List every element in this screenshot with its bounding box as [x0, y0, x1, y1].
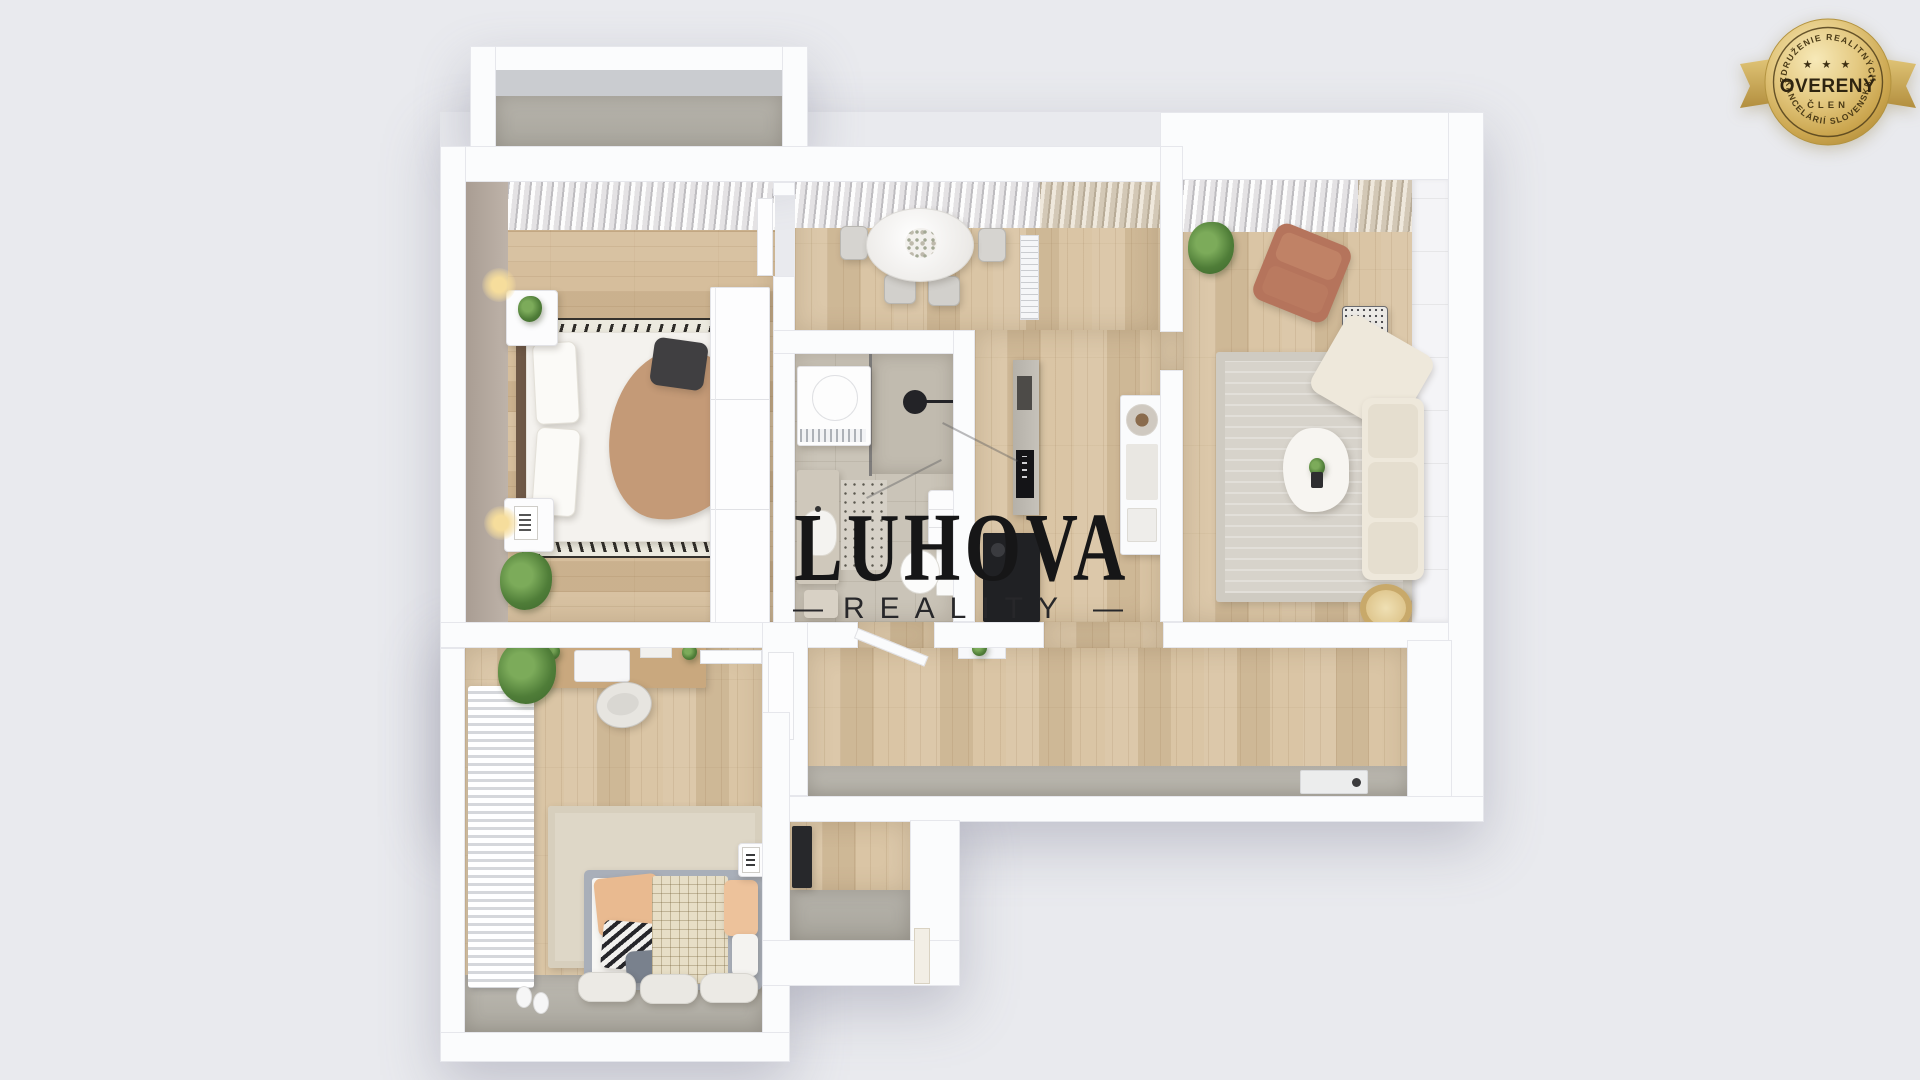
basket-icon [1126, 404, 1158, 436]
floor-cushion [640, 974, 698, 1004]
wall [440, 146, 466, 648]
badge-member-label: ČLEN [1807, 99, 1849, 111]
wall [1160, 112, 1484, 180]
entry-floor-concrete [790, 890, 910, 942]
floor-cushion [700, 973, 758, 1003]
badge-title: OVERENÝ [1780, 75, 1876, 97]
front-door [914, 928, 930, 984]
wall [440, 146, 1165, 182]
wall [440, 648, 465, 1062]
louver-radiator [468, 686, 534, 988]
wall [773, 182, 795, 196]
watermark-dash: — [1093, 592, 1123, 626]
window-curtain [508, 182, 775, 230]
door-leaf [700, 650, 762, 664]
watermark-title: LUHOVA [794, 492, 1130, 604]
wall [910, 820, 960, 945]
shower-head-icon [903, 390, 927, 414]
oven-icon [1016, 450, 1034, 498]
living-doorway-floor [1160, 332, 1183, 370]
kitchen-niche [1017, 376, 1032, 410]
shoe-cabinet [792, 826, 812, 888]
wall [782, 46, 808, 152]
balcony-inner-wall [496, 70, 782, 98]
flower-centerpiece-icon [905, 228, 937, 258]
decor-object [1352, 778, 1361, 787]
watermark-subtitle-text: REALITY [843, 592, 1073, 626]
dining-chair [978, 228, 1006, 262]
wall [1160, 146, 1183, 332]
pillow [532, 341, 580, 425]
shower-arm [925, 400, 953, 403]
slippers-icon [533, 992, 549, 1014]
watermark-subtitle: — REALITY — [793, 592, 1123, 626]
wall [1448, 112, 1484, 822]
floor-cushion [578, 972, 636, 1002]
laptop-icon [574, 650, 630, 682]
wall [773, 330, 975, 354]
dining-chair [840, 226, 868, 260]
wall [762, 796, 1484, 822]
window-curtain [1040, 182, 1160, 228]
wall [470, 46, 808, 72]
framed-art [742, 847, 760, 873]
sofa-sectional [1362, 398, 1424, 580]
window-curtain [1358, 178, 1412, 232]
pillow [732, 934, 758, 976]
badge-stars-icon: ★ ★ ★ [1803, 59, 1854, 71]
watermark-dash: — [793, 592, 823, 626]
badge-membership: ZDRUŽENIE REALITNÝCH KANCELÁRIÍ SLOVENSK… [1736, 6, 1920, 156]
pillow [724, 880, 758, 936]
balcony-floor [496, 96, 782, 152]
wall-lamp-icon [482, 268, 516, 302]
wall [440, 1032, 790, 1062]
wardrobe [710, 287, 770, 624]
coffee-table [1283, 428, 1349, 512]
washing-machine [797, 366, 871, 446]
wall [1407, 640, 1452, 800]
wall [762, 940, 960, 986]
bedroom1-wall-face [466, 182, 508, 622]
wall [470, 46, 496, 152]
shower-area [872, 354, 953, 474]
radiator [1020, 235, 1039, 320]
floorplan-render: LUHOVA — REALITY — ZDRUŽENIE REALITNÝCH [0, 0, 1920, 1080]
blanket-checkered [652, 876, 728, 984]
wall [1160, 370, 1183, 622]
pillow [649, 336, 709, 391]
slippers-icon [516, 986, 532, 1008]
wall-lamp-icon [484, 506, 518, 540]
door-leaf [757, 198, 773, 276]
